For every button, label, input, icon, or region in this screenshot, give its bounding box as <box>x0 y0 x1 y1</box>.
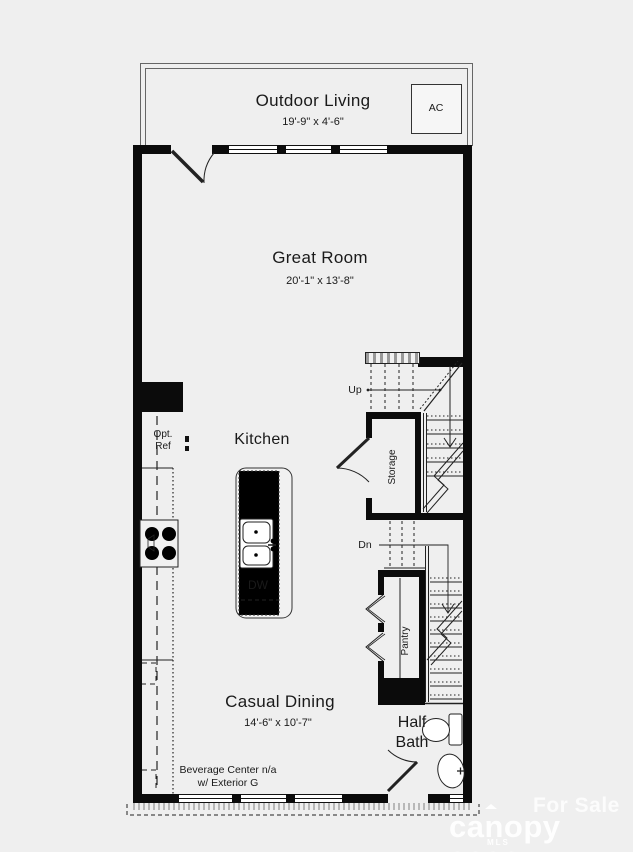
stoop-outline <box>127 804 479 815</box>
pedestal-sink <box>435 752 468 791</box>
landing-railing <box>384 521 425 568</box>
half-bath-label: Half Bath <box>396 713 429 753</box>
outdoor-living-dims: 19'-9" x 4'-6" <box>282 116 344 128</box>
opt-ref-label: Opt. Ref <box>154 429 173 453</box>
dn-label: Dn <box>358 539 371 551</box>
beverage-line1: Beverage Center n/a <box>180 764 277 777</box>
kitchen-counter <box>142 416 173 794</box>
casual-dining-label: Casual Dining <box>225 692 335 712</box>
cooktop <box>140 520 178 567</box>
pantry-label: Pantry <box>400 627 412 656</box>
up-stairs <box>371 361 463 513</box>
opt-ref-line1: Opt. <box>154 429 173 441</box>
pantry-doors <box>366 578 400 678</box>
great-room-dims: 20'-1" x 13'-8" <box>286 275 354 287</box>
half-bath-door <box>388 750 417 791</box>
beverage-center-label: Beverage Center n/a w/ Exterior G <box>180 764 277 790</box>
beverage-center-outline <box>142 663 156 792</box>
great-room-label: Great Room <box>272 248 368 268</box>
opt-ref-handle <box>185 436 189 451</box>
down-stairs <box>425 546 463 704</box>
opt-ref-line2: Ref <box>154 441 173 453</box>
up-label: Up <box>348 384 361 396</box>
watermark-brand-accent <box>485 804 497 809</box>
kitchen-label: Kitchen <box>234 431 289 449</box>
half-bath-line1: Half <box>396 713 429 733</box>
outdoor-living-label: Outdoor Living <box>256 91 371 111</box>
entry-door <box>172 151 214 183</box>
down-leader <box>379 545 454 613</box>
half-bath-line2: Bath <box>396 733 429 753</box>
dishwasher-label: DW <box>248 578 268 592</box>
storage-label: Storage <box>387 449 399 484</box>
floor-plan-canvas: AC <box>0 0 633 852</box>
casual-dining-dims: 14'-6" x 10'-7" <box>244 717 312 729</box>
beverage-line2: w/ Exterior G <box>180 777 277 790</box>
storage-door <box>337 438 369 482</box>
island-sink <box>240 519 276 568</box>
up-leader <box>367 389 442 392</box>
